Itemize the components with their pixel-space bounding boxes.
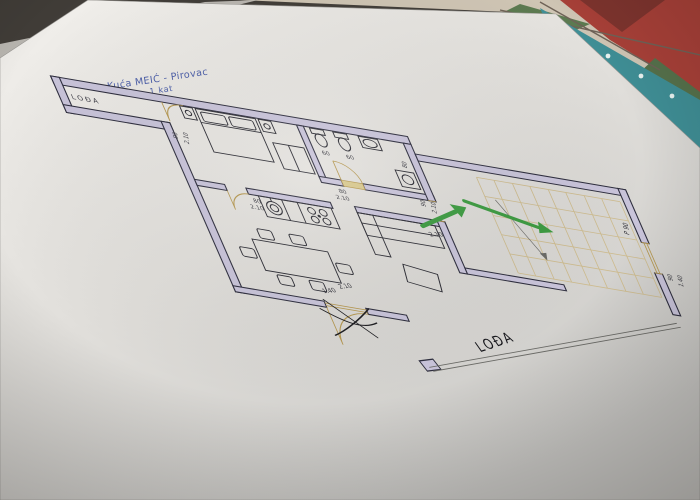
photo-vignette xyxy=(0,0,700,500)
photo-of-floor-plan: Kuća MEIĆ - Pirovac 1 kat xyxy=(0,0,700,500)
scene-canvas: Kuća MEIĆ - Pirovac 1 kat xyxy=(0,0,700,500)
